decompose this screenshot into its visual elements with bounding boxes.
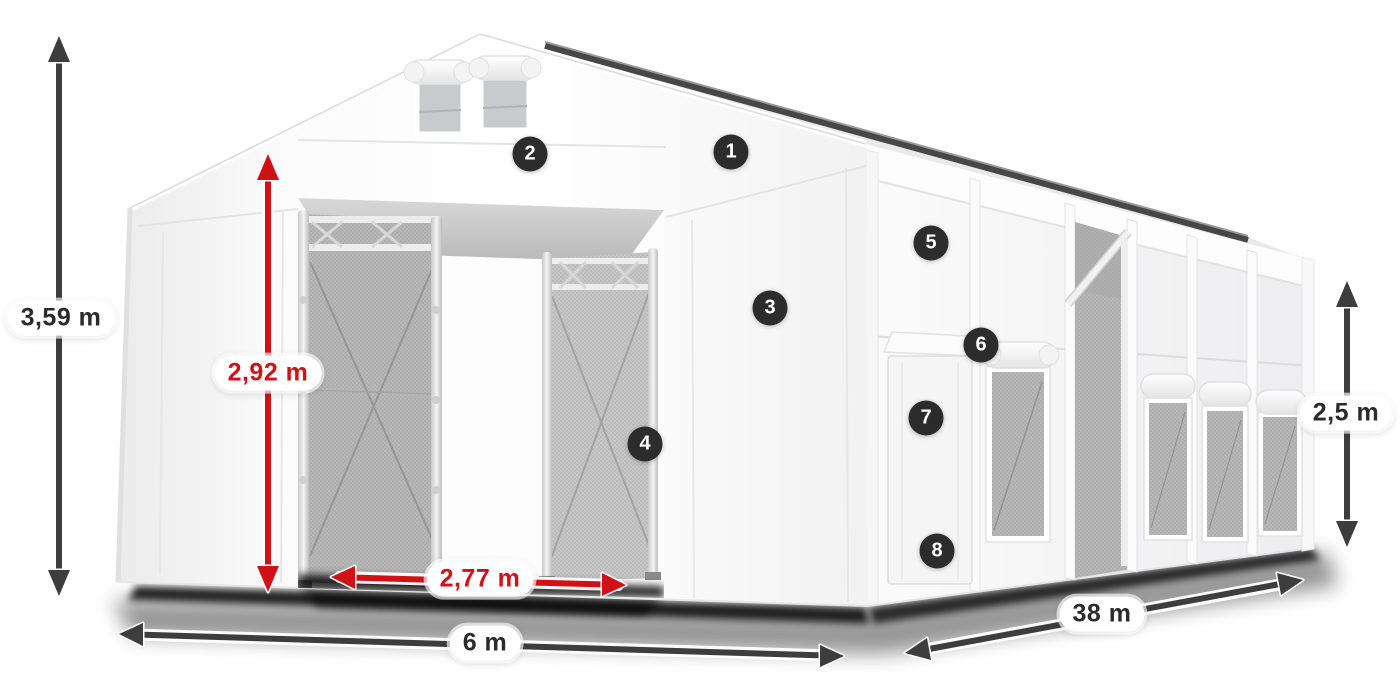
dimension-label-total-height: 3,59 m [8, 301, 115, 336]
dimension-label-entrance-height: 2,92 m [215, 356, 322, 391]
hotspot-marker-4[interactable]: 4 [628, 427, 663, 462]
hotspot-marker-3[interactable]: 3 [753, 291, 788, 326]
open-side-section [1068, 222, 1128, 578]
dimension-label-side-height: 2,5 m [1300, 396, 1392, 431]
dimension-label-length: 38 m [1060, 597, 1145, 632]
hotspot-marker-8[interactable]: 8 [920, 534, 955, 569]
tent-illustration [0, 0, 1400, 700]
side-window-front [981, 342, 1059, 542]
dimension-label-front-width: 6 m [450, 626, 521, 661]
hotspot-marker-5[interactable]: 5 [914, 226, 949, 261]
hotspot-marker-2[interactable]: 2 [513, 137, 548, 172]
mesh-gate-right [539, 248, 661, 584]
tent-dimension-diagram: 3,59 m 2,92 m 2,77 m 6 m 38 m 2,5 m 1 2 … [0, 0, 1400, 700]
hotspot-marker-7[interactable]: 7 [909, 401, 944, 436]
side-windows-rear [1141, 374, 1306, 542]
hotspot-marker-1[interactable]: 1 [714, 135, 749, 170]
mesh-gate-left [294, 210, 446, 590]
entrance-opening [294, 198, 664, 598]
dimension-label-entrance-width: 2,77 m [427, 562, 534, 597]
hotspot-marker-6[interactable]: 6 [964, 328, 999, 363]
